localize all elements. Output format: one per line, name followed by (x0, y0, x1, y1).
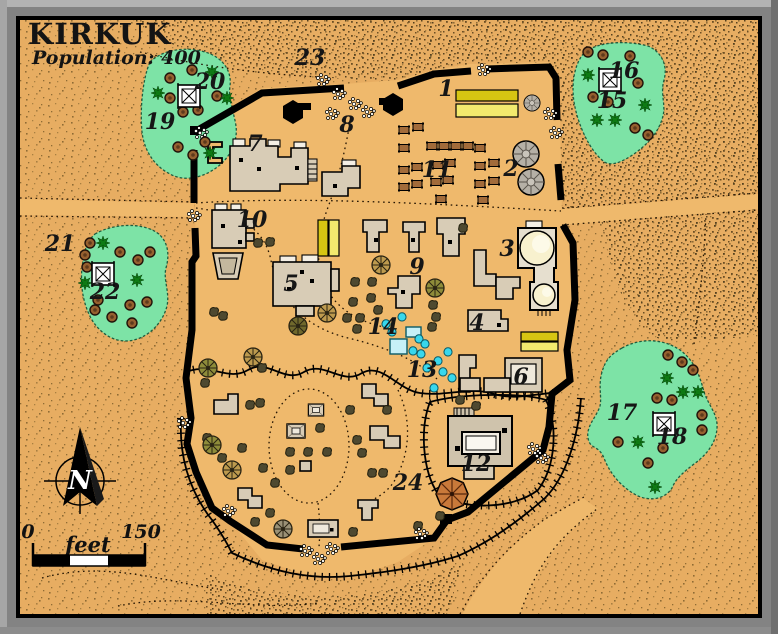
scale-start: 0 (21, 521, 34, 543)
tent-24 (436, 478, 468, 510)
guardhouse-south (308, 520, 338, 537)
map-title: KIRKUK (28, 17, 172, 51)
map-label-8: 8 (338, 112, 354, 138)
map-label-14: 14 (368, 314, 399, 340)
map-label-11: 11 (422, 157, 453, 183)
scale-end: 150 (121, 521, 161, 543)
map-label-20: 20 (194, 69, 226, 95)
yellow-halls-north (456, 90, 518, 117)
map-label-15: 15 (597, 88, 628, 114)
map-label-18: 18 (657, 424, 688, 450)
yellow-halls-mid (318, 220, 339, 256)
map-label-7: 7 (247, 131, 263, 157)
map-label-12: 12 (461, 451, 492, 477)
map-label-10: 10 (237, 207, 268, 233)
scale-unit: feet (63, 532, 111, 557)
map-label-4: 4 (469, 310, 484, 336)
compass-north-letter: N (67, 466, 93, 496)
map-label-24: 24 (392, 470, 424, 496)
map-label-22: 22 (89, 279, 121, 305)
map-subtitle: Population: 400 (31, 47, 201, 69)
map-label-16: 16 (609, 58, 640, 84)
map-label-1: 1 (438, 76, 453, 102)
map-label-23: 23 (294, 45, 326, 71)
map-label-13: 13 (407, 357, 438, 383)
map-label-6: 6 (513, 364, 528, 390)
town-map: KIRKUK Population: 400 N 0 feet 150 1234… (0, 0, 778, 634)
map-label-2: 2 (502, 156, 518, 182)
map-label-21: 21 (44, 231, 76, 257)
map-label-17: 17 (607, 400, 638, 426)
map-label-9: 9 (409, 254, 424, 280)
map-label-5: 5 (283, 271, 298, 297)
map-label-3: 3 (499, 236, 514, 262)
map-label-19: 19 (145, 109, 176, 135)
yellow-halls-east (521, 332, 558, 351)
